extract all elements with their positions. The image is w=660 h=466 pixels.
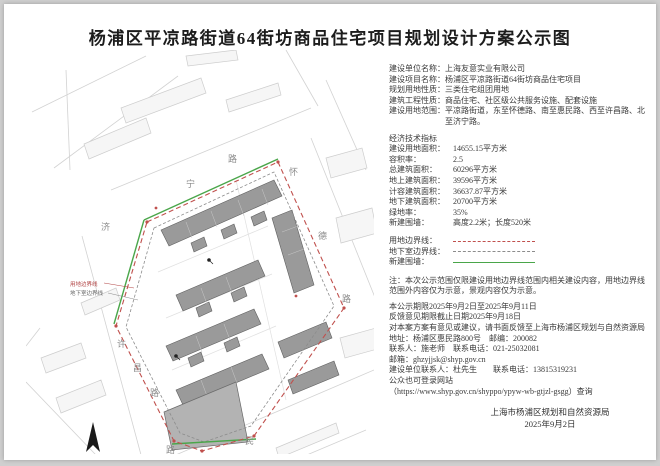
info-label: 建设用地范围：: [389, 106, 445, 115]
site-buildings: [161, 180, 339, 405]
legend-label: 地下室边界线：: [389, 247, 453, 258]
road-label-huimin-3: 民: [245, 436, 254, 446]
indicator-label: 地下建筑面积：: [389, 197, 453, 208]
indicator-row: 计容建筑面积：36637.87平方米: [389, 187, 645, 198]
info-line: 建设单位名称：上海友意实业有限公司: [389, 64, 645, 75]
building-slab-mid2: [166, 309, 261, 361]
info-value: 商品住宅、社区级公共服务设施、配套设施: [445, 96, 597, 105]
indicator-value: 20700平方米: [453, 197, 645, 208]
indicator-row: 地上建筑面积：39596平方米: [389, 176, 645, 187]
road-label-huaide-1: 怀: [289, 166, 298, 177]
legend-row: 地下室边界线：: [389, 247, 645, 258]
indicator-row: 建设用地面积：14655.15平方米: [389, 144, 645, 155]
legend-label: 用地边界线：: [389, 236, 453, 247]
road-label-jining-2: 宁: [186, 178, 195, 189]
boundary-line-swatch: [453, 241, 535, 242]
site-plan-svg: 用地边界线 地下室边界线 济 宁 路 怀 德 路 路 惠 民 许: [26, 50, 374, 454]
info-line: 规划用地性质：三类住宅组团用地: [389, 85, 645, 96]
info-line: 建设项目名称：杨浦区平凉路街道64街坊商品住宅项目: [389, 75, 645, 86]
fence-line-swatch: [453, 262, 535, 263]
road-label-xuchang-1: 许: [117, 338, 126, 349]
footer-agency: 上海市杨浦区规划和自然资源局: [452, 406, 648, 418]
indicator-row: 绿地率：35%: [389, 208, 645, 219]
info-label: 规划用地性质：: [389, 85, 445, 94]
indicator-value: 14655.15平方米: [453, 144, 645, 155]
road-label-xuchang-2: 昌: [133, 363, 142, 373]
notice-line-website-url: （https://www.shyp.gov.cn/shyppo/ypyw-wb-…: [389, 387, 645, 398]
notice-line-period: 本公示期限2025年9月2日至2025年9月11日: [389, 302, 645, 313]
footer-date: 2025年9月2日: [452, 418, 648, 430]
legend-row: 用地边界线：: [389, 236, 645, 247]
indicator-label: 计容建筑面积：: [389, 187, 453, 198]
notice-line-feedback: 对本案方案有意见或建议，请书面反馈至上海市杨浦区规划与自然资源局: [389, 323, 645, 334]
indicators-header: 经济技术指标: [389, 134, 645, 145]
indicator-row: 新建围墙：高度2.2米；长度520米: [389, 218, 645, 229]
notice-section: 本公示期限2025年9月2日至2025年9月11日 反馈意见期限截止日期2025…: [389, 302, 645, 397]
project-info-section: 建设单位名称：上海友意实业有限公司 建设项目名称：杨浦区平凉路街道64街坊商品住…: [389, 64, 645, 128]
indicator-row: 总建筑面积：60296平方米: [389, 165, 645, 176]
info-line: 建设用地范围：平凉路街道，东至怀德路、南至惠民路、西至许昌路、北至济宁路。: [389, 106, 645, 127]
page-title: 杨浦区平凉路街道64街坊商品住宅项目规划设计方案公示图: [4, 24, 656, 49]
road-label-huaide-2: 德: [318, 230, 327, 241]
info-value: 上海友意实业有限公司: [445, 64, 525, 73]
indicator-row: 容积率：2.5: [389, 155, 645, 166]
notice-line-email: 邮箱：ghzyjjsk@shyp.gov.cn: [389, 355, 645, 366]
building-slab-east: [272, 210, 314, 293]
indicator-value: 高度2.2米；长度520米: [453, 218, 645, 229]
site-plan-map: 用地边界线 地下室边界线 济 宁 路 怀 德 路 路 惠 民 许: [26, 50, 374, 454]
indicator-label: 绿地率：: [389, 208, 453, 219]
indicator-value: 39596平方米: [453, 176, 645, 187]
note-section: 注：本次公示范围仅限建设用地边界线范围内相关建设内容，用地边界线范围外内容仅为示…: [389, 276, 645, 297]
legend-row: 新建围墙：: [389, 257, 645, 268]
road-label-huimin-1: 路: [166, 444, 175, 454]
indicator-label: 地上建筑面积：: [389, 176, 453, 187]
legend-label: 新建围墙：: [389, 257, 453, 268]
notice-line-address: 地址：杨浦区惠民路800号 邮编：200082: [389, 334, 645, 345]
indicator-label: 容积率：: [389, 155, 453, 166]
indicator-label: 总建筑面积：: [389, 165, 453, 176]
indicator-label: 新建围墙：: [389, 218, 453, 229]
indicator-value: 60296平方米: [453, 165, 645, 176]
notice-line-deadline: 反馈意见期限截止日期2025年9月18日: [389, 312, 645, 323]
road-label-huaide-3: 路: [342, 293, 351, 304]
info-line: 建筑工程性质：商品住宅、社区级公共服务设施、配套设施: [389, 96, 645, 107]
notice-sheet: 杨浦区平凉路街道64街坊商品住宅项目规划设计方案公示图: [4, 4, 656, 460]
footer-signature: 上海市杨浦区规划和自然资源局 2025年9月2日: [452, 406, 648, 430]
info-label: 建设单位名称：: [389, 64, 445, 73]
indicator-label: 建设用地面积：: [389, 144, 453, 155]
indicator-value: 36637.87平方米: [453, 187, 645, 198]
info-value: 三类住宅组团用地: [445, 85, 509, 94]
basement-line-swatch: [453, 251, 535, 252]
indicator-value: 2.5: [453, 155, 645, 166]
map-boundary-annotation: 用地边界线: [70, 280, 98, 288]
legend-section: 用地边界线： 地下室边界线： 新建围墙：: [389, 236, 645, 268]
info-value: 平凉路街道，东至怀德路、南至惠民路、西至许昌路、北至济宁路。: [445, 106, 645, 126]
road-label-xuchang-3: 路: [150, 387, 159, 398]
info-label: 建筑工程性质：: [389, 96, 445, 105]
north-arrow-icon: [86, 422, 100, 452]
indicator-row: 地下建筑面积：20700平方米: [389, 197, 645, 208]
building-slab-mid1: [176, 260, 265, 311]
notice-line-build-contact: 建设单位联系人：杜先生 联系电话：13815319231: [389, 365, 645, 376]
map-basement-annotation: 地下室边界线: [70, 289, 104, 297]
building-slab-se1: [278, 322, 332, 358]
notice-line-contact: 联系人：施老师 联系电话：021-25032081: [389, 344, 645, 355]
indicator-value: 35%: [453, 208, 645, 219]
road-label-jining-3: 路: [228, 153, 237, 164]
info-value: 杨浦区平凉路街道64街坊商品住宅项目: [445, 75, 581, 84]
info-label: 建设项目名称：: [389, 75, 445, 84]
scope-note: 注：本次公示范围仅限建设用地边界线范围内相关建设内容，用地边界线范围外内容仅为示…: [389, 276, 645, 297]
notice-sheet-frame: 杨浦区平凉路街道64街坊商品住宅项目规划设计方案公示图: [0, 0, 660, 466]
indicators-section: 经济技术指标 建设用地面积：14655.15平方米 容积率：2.5 总建筑面积：…: [389, 134, 645, 229]
info-panel: 建设单位名称：上海友意实业有限公司 建设项目名称：杨浦区平凉路街道64街坊商品住…: [389, 64, 645, 397]
road-label-jining-1: 济: [101, 221, 110, 232]
notice-line-website-intro: 公众也可登录网站: [389, 376, 645, 387]
